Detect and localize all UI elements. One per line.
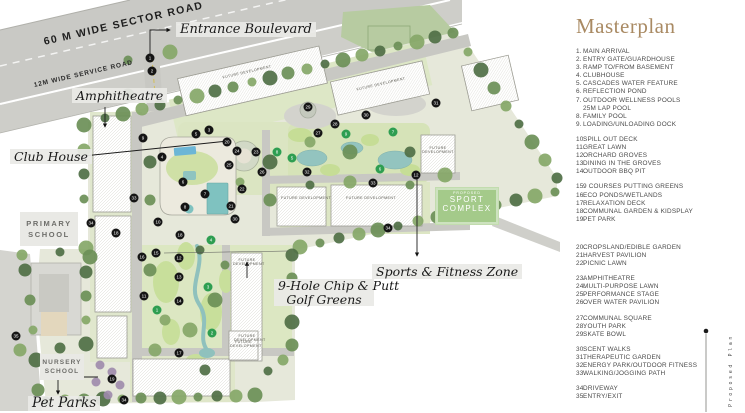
legend-item: 32.ENERGY PARK/OUTDOOR FITNESS: [570, 362, 740, 370]
legend-item: 30.SCENT WALKS: [570, 346, 740, 354]
map-marker-10: 10: [154, 218, 163, 227]
map-marker-34: 34: [120, 396, 129, 405]
map-marker-1: 1: [146, 54, 155, 63]
southeast-road: [492, 216, 560, 252]
legend-title: Masterplan: [576, 14, 740, 39]
proposed-plan-side-text: Proposed Plan: [728, 334, 734, 407]
golf-greens-label-line1: 9-Hole Chip & Putt: [278, 279, 370, 293]
map-marker-30: 30: [231, 215, 240, 224]
legend-item: 1.MAIN ARRIVAL: [570, 48, 740, 56]
masterplan-page: 60 M WIDE SECTOR ROAD 12M WIDE SERVICE R…: [0, 0, 745, 413]
legend-item: 4.CLUBHOUSE: [570, 72, 740, 80]
map-marker-24: 24: [233, 147, 242, 156]
future-development-label: FUTURE DEVELOPMENT: [281, 196, 331, 200]
map-marker-34: 34: [384, 224, 393, 233]
golf-greens-label: 9-Hole Chip & Putt Golf Greens: [274, 279, 374, 306]
legend-group: 10.SPILL OUT DECK11.GREAT LAWN12.ORCHARD…: [570, 136, 740, 176]
legend-item: 15.9 COURSES PUTTING GREENS: [570, 183, 740, 191]
map-marker-22: 22: [238, 185, 247, 194]
map-marker-18: 18: [112, 229, 121, 238]
map-marker-30: 30: [362, 111, 371, 120]
map-marker-29: 29: [304, 103, 313, 112]
map-marker-32: 32: [303, 168, 312, 177]
map-marker-9: 9: [342, 130, 351, 139]
legend-item: 23.AMPHITHEATRE: [570, 275, 740, 283]
legend-group: 34.DRIVEWAY35.ENTRY/EXIT: [570, 385, 740, 401]
legend-group: 30.SCENT WALKS31.THERAPEUTIC GARDEN32.EN…: [570, 346, 740, 378]
entrance-boulevard-label: Entrance Boulevard: [176, 22, 316, 37]
legend-item: 11.GREAT LAWN: [570, 144, 740, 152]
map-marker-4: 4: [207, 236, 216, 245]
club-house-label: Club House: [10, 149, 92, 164]
map-marker-8: 8: [273, 148, 282, 157]
legend-group: 20.CROPSLAND/EDIBLE GARDEN21.HARVEST PAV…: [570, 244, 740, 268]
map-marker-8: 8: [181, 203, 190, 212]
map-marker-18: 18: [176, 231, 185, 240]
map-marker-28: 28: [331, 120, 340, 129]
legend-item: 25M LAP POOL: [570, 105, 740, 113]
map-marker-33: 33: [130, 194, 139, 203]
pet-parks-label: Pet Parks: [28, 396, 100, 411]
legend-item: 17.RELAXATION DECK: [570, 200, 740, 208]
legend-item: 7.OUTDOOR WELLNESS POOLS: [570, 97, 740, 105]
map-marker-26: 26: [258, 168, 267, 177]
map-marker-15: 15: [152, 249, 161, 258]
legend-item: 10.SPILL OUT DECK: [570, 136, 740, 144]
map-marker-11: 11: [140, 292, 149, 301]
map-marker-34: 34: [87, 219, 96, 228]
primary-school-label: PRIMARY SCHOOL: [20, 212, 78, 246]
legend-item: 31.THERAPEUTIC GARDEN: [570, 354, 740, 362]
legend-item: 26.OVER WATER PAVILION: [570, 299, 740, 307]
legend-item: 34.DRIVEWAY: [570, 385, 740, 393]
future-development-label: FUTURE DEVELOPMENT: [422, 146, 454, 154]
map-marker-25: 25: [225, 161, 234, 170]
legend-item: 12.ORCHARD GROVES: [570, 152, 740, 160]
legend-item: 25.PERFORMANCE STAGE: [570, 291, 740, 299]
legend-group: 1.MAIN ARRIVAL2.ENTRY GATE/GUARDHOUSE3.R…: [570, 48, 740, 129]
legend-item: 35.ENTRY/EXIT: [570, 393, 740, 401]
legend-item: 22.PICNIC LAWN: [570, 260, 740, 268]
future-development-label: FUTURE DEVELOPMENT: [230, 340, 257, 348]
map-marker-12: 12: [175, 254, 184, 263]
amphitheatre-label: Amphitheatre: [72, 88, 167, 103]
map-marker-7: 7: [389, 128, 398, 137]
map-marker-6: 6: [179, 178, 188, 187]
legend-item: 27.COMMUNAL SQUARE: [570, 315, 740, 323]
sport-complex: PROPOSED SPORT COMPLEX: [435, 187, 499, 225]
map-marker-6: 6: [376, 165, 385, 174]
legend-item: 16.ECO PONDS/WETLANDS: [570, 192, 740, 200]
legend-item: 28.YOUTH PARK: [570, 323, 740, 331]
legend-list: 1.MAIN ARRIVAL2.ENTRY GATE/GUARDHOUSE3.R…: [570, 48, 740, 401]
map-marker-2: 2: [148, 67, 157, 76]
sports-fitness-zone-label: Sports & Fitness Zone: [372, 264, 522, 279]
legend-item: 6.REFLECTION POND: [570, 88, 740, 96]
legend-item: 8.FAMILY POOL: [570, 113, 740, 121]
map-marker-23: 23: [252, 148, 261, 157]
legend-panel: Masterplan 1.MAIN ARRIVAL2.ENTRY GATE/GU…: [570, 14, 740, 401]
legend-item: 14.OUTDOOR BBQ PIT: [570, 168, 740, 176]
map-marker-16: 16: [138, 253, 147, 262]
map-marker-14: 14: [175, 297, 184, 306]
legend-item: 5.CASCADES WATER FEATURE: [570, 80, 740, 88]
legend-group: 23.AMPHITHEATRE24.MULTI-PURPOSE LAWN25.P…: [570, 275, 740, 307]
legend-group: 27.COMMUNAL SQUARE28.YOUTH PARK29.SKATE …: [570, 315, 740, 339]
map-marker-1: 1: [153, 306, 162, 315]
legend-item: 18.COMMUNAL GARDEN & KIDSPLAY: [570, 208, 740, 216]
map-marker-9: 9: [139, 134, 148, 143]
map-marker-33: 33: [369, 179, 378, 188]
map-marker-3: 3: [204, 283, 213, 292]
legend-group: 15.9 COURSES PUTTING GREENS16.ECO PONDS/…: [570, 183, 740, 223]
legend-item: 24.MULTI-PURPOSE LAWN: [570, 283, 740, 291]
future-development-label: FUTURE DEVELOPMENT: [346, 196, 396, 200]
map-marker-5: 5: [192, 130, 201, 139]
map-marker-5: 5: [288, 154, 297, 163]
legend-item: 20.CROPSLAND/EDIBLE GARDEN: [570, 244, 740, 252]
map-marker-4: 4: [158, 153, 167, 162]
map-marker-3: 3: [205, 126, 214, 135]
map-marker-7: 7: [201, 190, 210, 199]
legend-item: 29.SKATE BOWL: [570, 331, 740, 339]
map-marker-17: 17: [175, 349, 184, 358]
legend-item: 33.WALKING/JOGGING PATH: [570, 370, 740, 378]
sport-complex-line2: COMPLEX: [436, 204, 498, 213]
future-development-label: FUTURE DEVELOPMENT: [233, 258, 261, 266]
map-marker-20: 20: [223, 138, 232, 147]
clubhouse: [160, 137, 236, 215]
legend-item: 13.DINING IN THE GROVES: [570, 160, 740, 168]
school-buildings: [31, 263, 81, 336]
map-marker-35: 35: [12, 332, 21, 341]
map-marker-2: 2: [208, 329, 217, 338]
legend-item: 21.HARVEST PAVILION: [570, 252, 740, 260]
map-marker-27: 27: [314, 129, 323, 138]
lap-pool: [207, 183, 228, 214]
map-marker-13: 13: [175, 273, 184, 282]
legend-item: 19.PET PARK: [570, 216, 740, 224]
legend-item: 2.ENTRY GATE/GUARDHOUSE: [570, 56, 740, 64]
map-marker-31: 31: [432, 99, 441, 108]
map-marker-21: 21: [227, 202, 236, 211]
golf-greens-label-line2: Golf Greens: [278, 293, 370, 307]
nursery-school-label: NURSERY SCHOOL: [40, 354, 84, 380]
legend-item: 3.RAMP TO/FROM BASEMENT: [570, 64, 740, 72]
legend-item: 9.LOADING/UNLOADING DOCK: [570, 121, 740, 129]
map-marker-19: 19: [108, 375, 117, 384]
map-marker-12: 12: [412, 171, 421, 180]
sport-complex-line1: SPORT: [436, 195, 498, 204]
